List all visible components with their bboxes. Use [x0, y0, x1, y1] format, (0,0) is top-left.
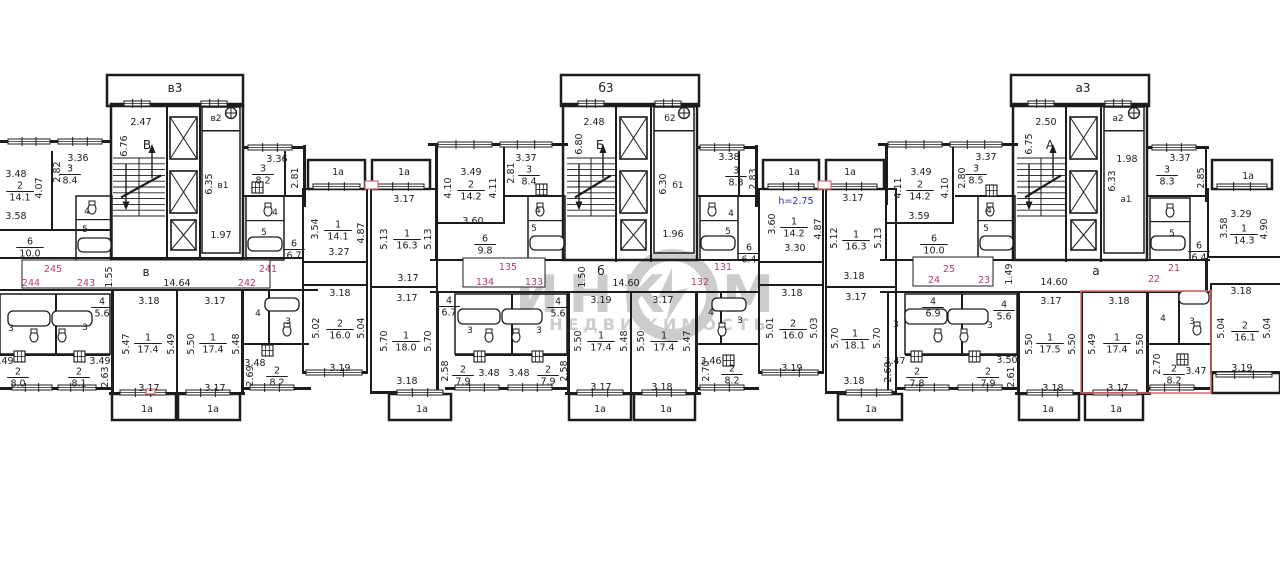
dimension-label: 5.50: [1135, 333, 1146, 354]
toilet-icon: [719, 323, 725, 327]
room-number: 2: [460, 365, 466, 376]
room-number: 4: [1001, 300, 1007, 311]
toilet-icon: [265, 203, 271, 207]
room-area: 17.4: [137, 345, 158, 356]
bathtub-icon: [948, 309, 988, 324]
dimension-label: 5.49: [1087, 333, 1098, 354]
dimension-label: 1.55: [104, 266, 115, 287]
dimension-label: 5: [725, 227, 731, 237]
dimension-label: 1а: [844, 167, 856, 178]
dimension-label: 5.50: [1024, 333, 1035, 354]
bathtub-icon: [701, 236, 735, 250]
dimension-label: 3.17: [204, 383, 225, 394]
room-area: 8.1: [71, 379, 86, 390]
dimension-label: 1а: [865, 404, 877, 415]
dimension-label: 4: [728, 209, 734, 219]
dimension-label: 6.30: [658, 173, 669, 194]
bathtub-icon: [712, 298, 746, 311]
dimension-label: 3.18: [843, 376, 864, 387]
room-area: 16.3: [845, 242, 866, 253]
room-area: 7.9: [540, 377, 555, 388]
dimension-label: 1а: [141, 404, 153, 415]
dimension-label: 3.60: [767, 213, 778, 234]
dimension-label: 5.48: [231, 333, 242, 354]
wall-segment: [822, 188, 824, 373]
bathtub-icon: [980, 236, 1013, 250]
apartment-number: 24: [928, 275, 940, 286]
apartment-number: 245: [44, 264, 62, 275]
chutes: [226, 108, 1140, 119]
dimension-label: 5.04: [356, 317, 367, 338]
dimension-label: 1.50: [577, 266, 588, 287]
dimension-label: 4.10: [940, 177, 951, 198]
wall-segment: [1146, 291, 1149, 393]
dimension-label: 3.17: [396, 293, 417, 304]
dimension-label: 3.58: [1219, 217, 1230, 238]
dimension-label: 5.01: [765, 317, 776, 338]
room-number: 2: [274, 366, 280, 377]
dimension-label: а2: [1112, 114, 1123, 124]
wall-segment: [302, 284, 368, 286]
room-number: 2: [337, 319, 343, 330]
dimension-label: 6.80: [574, 133, 585, 154]
room-area: 7.9: [980, 379, 995, 390]
dimension-label: 3.48: [478, 368, 499, 379]
dimension-label: в: [142, 265, 149, 279]
dimension-label: 1а: [1110, 404, 1122, 415]
dimension-label: 2.48: [583, 117, 604, 128]
wall-segment: [758, 261, 824, 263]
dimension-label: 4.11: [488, 177, 499, 198]
dimension-label: 4.11: [893, 177, 904, 198]
dimension-label: 1а: [660, 404, 672, 415]
wall-segment: [615, 104, 617, 262]
room-number: 3: [973, 164, 979, 175]
dimension-label: 2.85: [1196, 167, 1207, 188]
room-area: 8.4: [62, 176, 77, 187]
room-area: 14.3: [1233, 236, 1254, 247]
apartment-number: 135: [499, 262, 517, 273]
dimension-label: 3.47: [884, 356, 905, 367]
dimension-label: 3.49: [460, 167, 481, 178]
dimension-label: 3.37: [515, 153, 536, 164]
dimension-label: 3.37: [1169, 153, 1190, 164]
dimension-label: 1а: [594, 404, 606, 415]
room-number: 2: [1242, 321, 1248, 332]
dimension-label: 5.47: [682, 330, 693, 351]
dimension-label: 4: [535, 206, 541, 216]
dimension-label: а3: [1076, 81, 1091, 95]
room-area: 8.2: [255, 176, 270, 187]
room-area-label: 114.2: [780, 217, 808, 240]
dimension-label: 3.29: [1230, 209, 1251, 220]
dimension-label: 1а: [1042, 404, 1054, 415]
dimension-label: в3: [168, 81, 183, 95]
wall-segment: [1207, 188, 1209, 258]
room-number: 1: [145, 333, 151, 344]
room-area-label: 216.0: [779, 319, 807, 342]
room-area: 16.1: [1234, 333, 1255, 344]
dimension-label: 5: [531, 224, 537, 234]
dimension-label: 5.13: [379, 228, 390, 249]
dimension-label: б: [597, 264, 604, 278]
dimension-label: 4: [1160, 314, 1166, 324]
dimension-label: 2.82: [52, 161, 63, 182]
dimension-label: 1а: [1242, 171, 1254, 182]
apartment-number: 244: [22, 278, 40, 289]
room-number: 2: [917, 180, 923, 191]
room-number: 6: [291, 239, 297, 250]
dimension-label: 2.63: [100, 366, 111, 387]
dimension-label: 3.46: [700, 356, 721, 367]
dimension-label: 3.17: [204, 296, 225, 307]
dimension-label: 3.37: [975, 152, 996, 163]
wall-segment: [1104, 130, 1144, 132]
toilet-icon: [961, 329, 967, 333]
dimension-label: 4.87: [813, 218, 824, 239]
dimension-label: 3.17: [842, 193, 863, 204]
dimension-label: 3.17: [1040, 296, 1061, 307]
room-number: 2: [15, 367, 21, 378]
room-number: 6: [27, 237, 33, 248]
room-area: 8.5: [968, 176, 983, 187]
room-area-label: 118.0: [392, 331, 420, 354]
room-number: 2: [17, 181, 23, 192]
room-area-label: 216.1: [1231, 321, 1259, 344]
dimension-label: 4.90: [1259, 218, 1270, 239]
dimension-label: 3.49: [910, 167, 931, 178]
dimension-label: 3: [8, 324, 14, 334]
wall-segment: [166, 104, 168, 262]
wall-segment: [1150, 221, 1190, 222]
watermark: ИНКМНЕДВИЖИМОСТЬ: [515, 255, 774, 335]
dimension-label: 3.17: [1107, 383, 1128, 394]
dimension-label: 1а: [398, 167, 410, 178]
dimension-label: 3.48: [5, 169, 26, 180]
room-number: 2: [545, 365, 551, 376]
room-area-label: 38.2: [252, 164, 274, 187]
room-area-label: 214.1: [6, 181, 34, 204]
dimension-label: 1а: [788, 167, 800, 178]
bathtub-icon: [78, 238, 111, 252]
room-number: 1: [791, 217, 797, 228]
room-area: 18.1: [844, 341, 865, 352]
wall-segment: [630, 291, 632, 393]
dimension-label: 5.02: [311, 317, 322, 338]
room-area: 10.0: [923, 246, 944, 257]
wall-segment: [528, 220, 565, 221]
red-mark: [365, 181, 378, 189]
room-area-label: 214.2: [457, 180, 485, 203]
dimension-label: 5: [261, 228, 267, 238]
wall-segment: [758, 284, 824, 286]
floor-plan: ИНКМНЕДВИЖИМОСТЬв32.476.76Вв26.35в11.973…: [0, 0, 1280, 574]
dimension-label: 3.36: [266, 154, 287, 165]
dimension-label: 3.18: [843, 271, 864, 282]
room-number: 2: [790, 319, 796, 330]
room-number: 2: [729, 364, 735, 375]
room-number: 6: [482, 234, 488, 245]
room-area: 6.4: [1191, 253, 1206, 264]
room-area-label: 117.4: [199, 333, 227, 356]
dimension-label: 4: [986, 206, 992, 216]
dimension-label: Б: [596, 138, 604, 152]
wall-segment: [695, 343, 759, 345]
room-area-label: 117.5: [1036, 333, 1064, 356]
bathtub-icon: [1179, 291, 1209, 304]
room-area: 14.1: [9, 193, 30, 204]
dimension-label: 5.50: [186, 333, 197, 354]
dimension-label: 1.97: [210, 230, 231, 241]
dimension-label: 3.19: [781, 363, 802, 374]
room-area-label: 66.4: [738, 243, 760, 266]
dimension-label: 3.19: [590, 295, 611, 306]
room-area: 16.3: [396, 241, 417, 252]
wall-segment: [825, 188, 827, 393]
stair-slash: [1025, 175, 1061, 197]
wall-segment: [435, 146, 437, 260]
toilet-icon: [709, 203, 715, 207]
room-area-label: 38.3: [725, 166, 747, 189]
room-area: 14.2: [783, 229, 804, 240]
wall-segment: [1207, 256, 1280, 258]
wall-segment: [370, 286, 438, 288]
dimension-label: 3: [1189, 317, 1195, 327]
room-area-label: 46.7: [438, 296, 460, 319]
dimension-label: 3: [467, 326, 473, 336]
room-area: 8.4: [521, 177, 536, 188]
dimension-label: 3.49: [89, 356, 110, 367]
room-area-label: 610.0: [16, 237, 44, 260]
dimension-label: 3: [737, 316, 743, 326]
dimension-label: 6.75: [1024, 133, 1035, 154]
wall-segment: [978, 220, 1015, 221]
dimension-label: в2: [210, 114, 221, 124]
dimension-label: 5.50: [636, 330, 647, 351]
dimension-label: 5.12: [829, 227, 840, 248]
stair-arrow-down-icon: [123, 202, 130, 211]
wall-segment: [370, 188, 372, 393]
dimension-label: 2.83: [748, 168, 759, 189]
dimension-label: 4: [255, 309, 261, 319]
dimension-label: 3.47: [1185, 366, 1206, 377]
room-number: 1: [661, 331, 667, 342]
apartment-number: 131: [714, 262, 732, 273]
wall-segment: [76, 219, 112, 220]
room-area: 17.4: [1106, 345, 1127, 356]
toilet-icon: [89, 201, 95, 205]
dimension-label: 3.54: [310, 218, 321, 239]
dimension-label: 3: [536, 326, 542, 336]
wall-segment: [366, 188, 368, 373]
toilet-icon: [1194, 322, 1200, 326]
room-area-label: 214.2: [906, 180, 934, 203]
room-number: 2: [76, 367, 82, 378]
dimension-label: 3.18: [329, 288, 350, 299]
dimension-label: 3.17: [393, 194, 414, 205]
dimension-label: 14.60: [1040, 277, 1067, 288]
dimension-label: 3.48: [508, 368, 529, 379]
wall-segment: [1146, 343, 1210, 345]
dimension-label: 5.50: [573, 330, 584, 351]
dimension-label: 5.03: [809, 317, 820, 338]
dimension-label: 6.35: [204, 173, 215, 194]
dimension-label: 3.18: [1230, 286, 1251, 297]
dimension-label: 4.87: [356, 222, 367, 243]
dimension-label: 4.07: [34, 177, 45, 198]
room-number: 1: [1241, 224, 1247, 235]
bathtub-icon: [530, 236, 564, 250]
wall-segment: [243, 343, 309, 345]
dimension-label: 5.50: [1067, 333, 1078, 354]
wall-segment: [758, 188, 760, 373]
room-area-label: 116.3: [842, 230, 870, 253]
dimension-label: 4: [84, 207, 90, 217]
room-number: 1: [1047, 333, 1053, 344]
room-number: 1: [403, 331, 409, 342]
wall-segment: [246, 220, 284, 221]
room-number: 6: [746, 243, 752, 254]
dimension-label: 5: [983, 224, 989, 234]
room-area-label: 118.1: [841, 329, 869, 352]
wall-segment: [654, 130, 694, 132]
room-area: 5.6: [996, 312, 1011, 323]
wall-segment: [885, 146, 887, 260]
dimension-label: 14.64: [163, 278, 190, 289]
dimension-label: 1а: [332, 167, 344, 178]
dimension-label: 1.49: [1004, 263, 1015, 284]
bathtub-icon: [1151, 236, 1185, 250]
room-area-label: 114.1: [324, 220, 352, 243]
room-area: 17.4: [590, 343, 611, 354]
room-area-label: 117.4: [1103, 333, 1131, 356]
dimension-label: 2.61: [1006, 366, 1017, 387]
room-number: 1: [210, 333, 216, 344]
dimension-label: 3.18: [651, 382, 672, 393]
wall-segment: [650, 104, 652, 262]
dimension-label: 3.36: [67, 153, 88, 164]
apartment-number: 243: [77, 278, 95, 289]
room-area-label: 117.4: [134, 333, 162, 356]
dimension-label: 2.70: [1152, 353, 1163, 374]
room-area-label: 216.0: [326, 319, 354, 342]
room-area-label: 45.6: [993, 300, 1015, 323]
bathtub-icon: [458, 309, 500, 324]
wall-segment: [695, 291, 698, 393]
room-number: 1: [852, 329, 858, 340]
room-area-label: 27.9: [537, 365, 559, 388]
room-area: 17.5: [1039, 345, 1060, 356]
dimension-label: 3.17: [590, 382, 611, 393]
room-area-label: 28.2: [1163, 364, 1185, 387]
dimension-label: в1: [217, 181, 228, 191]
wall-segment: [1210, 283, 1280, 285]
dimension-label: б3: [598, 81, 613, 95]
dimension-label: 2.81: [290, 167, 301, 188]
room-number: 3: [1164, 165, 1170, 176]
floorplan-canvas: ИНКМНЕДВИЖИМОСТЬв32.476.76Вв26.35в11.973…: [0, 0, 1280, 574]
room-area: 6.7: [441, 308, 456, 319]
stair-arrow-down-icon: [576, 202, 583, 211]
room-area: 7.8: [909, 379, 924, 390]
dimension-label: 3.17: [397, 273, 418, 284]
bathtub-icon: [265, 298, 299, 311]
room-number: 1: [404, 229, 410, 240]
room-area: 17.4: [653, 343, 674, 354]
room-area: 10.0: [19, 249, 40, 260]
dimension-label: 5.70: [423, 330, 434, 351]
wall-segment: [952, 146, 954, 224]
stair-slash: [575, 175, 611, 197]
dimension-label: 3.17: [138, 383, 159, 394]
dimension-label: 1.98: [1116, 154, 1137, 165]
dimension-label: 2.58: [559, 360, 570, 381]
room-area: 14.1: [327, 232, 348, 243]
room-area: 16.0: [329, 331, 350, 342]
dimension-label: 5.49: [166, 333, 177, 354]
dimension-label: 3.58: [5, 211, 26, 222]
wall-segment: [302, 188, 304, 373]
dimension-label: 3.38: [718, 152, 739, 163]
toilet-icon: [1167, 204, 1173, 208]
dimension-label: 14.60: [612, 278, 639, 289]
dimension-label: 3.19: [1231, 363, 1252, 374]
wall-segment: [0, 229, 112, 231]
room-area: 6.4: [741, 255, 756, 266]
wall-segment: [0, 257, 303, 259]
dimension-label: 5.04: [1262, 317, 1273, 338]
room-area-label: 116.3: [393, 229, 421, 252]
room-area-label: 28.2: [721, 364, 743, 387]
dimension-label: 3.18: [1108, 296, 1129, 307]
room-number: 2: [985, 367, 991, 378]
stair-arrow-down-icon: [1026, 202, 1033, 211]
dimension-label: 5: [82, 225, 88, 235]
toilet-icon: [31, 329, 37, 333]
room-area: 5.6: [550, 309, 565, 320]
wall-segment: [1100, 104, 1102, 262]
room-area: 18.0: [395, 343, 416, 354]
red-mark: [818, 181, 831, 189]
toilet-icon: [59, 329, 65, 333]
room-area: 8.0: [10, 379, 25, 390]
dimension-label: 5.70: [872, 327, 883, 348]
dimension-label: 5.04: [1216, 317, 1227, 338]
height-note: h=2.75: [778, 196, 813, 207]
room-area: 8.2: [724, 376, 739, 387]
room-number: 1: [1114, 333, 1120, 344]
dimension-label: 3.49: [0, 356, 14, 367]
wall-segment: [1065, 104, 1067, 262]
room-area: 9.8: [477, 246, 492, 257]
room-area: 16.0: [782, 331, 803, 342]
dimension-label: 3.18: [138, 296, 159, 307]
dimension-label: 1а: [207, 404, 219, 415]
room-number: 2: [468, 180, 474, 191]
room-number: 3: [526, 165, 532, 176]
dimension-label: 3.18: [1042, 383, 1063, 394]
dimension-label: 5.48: [619, 330, 630, 351]
room-area: 8.3: [728, 178, 743, 189]
room-number: 1: [853, 230, 859, 241]
dimension-label: 5.47: [121, 333, 132, 354]
room-number: 4: [99, 297, 105, 308]
stair-slash: [121, 175, 161, 197]
dimension-label: 2.80: [957, 167, 968, 188]
dimension-label: 5.70: [830, 327, 841, 348]
dimension-label: 2.58: [440, 360, 451, 381]
dimension-label: 4.10: [443, 177, 454, 198]
